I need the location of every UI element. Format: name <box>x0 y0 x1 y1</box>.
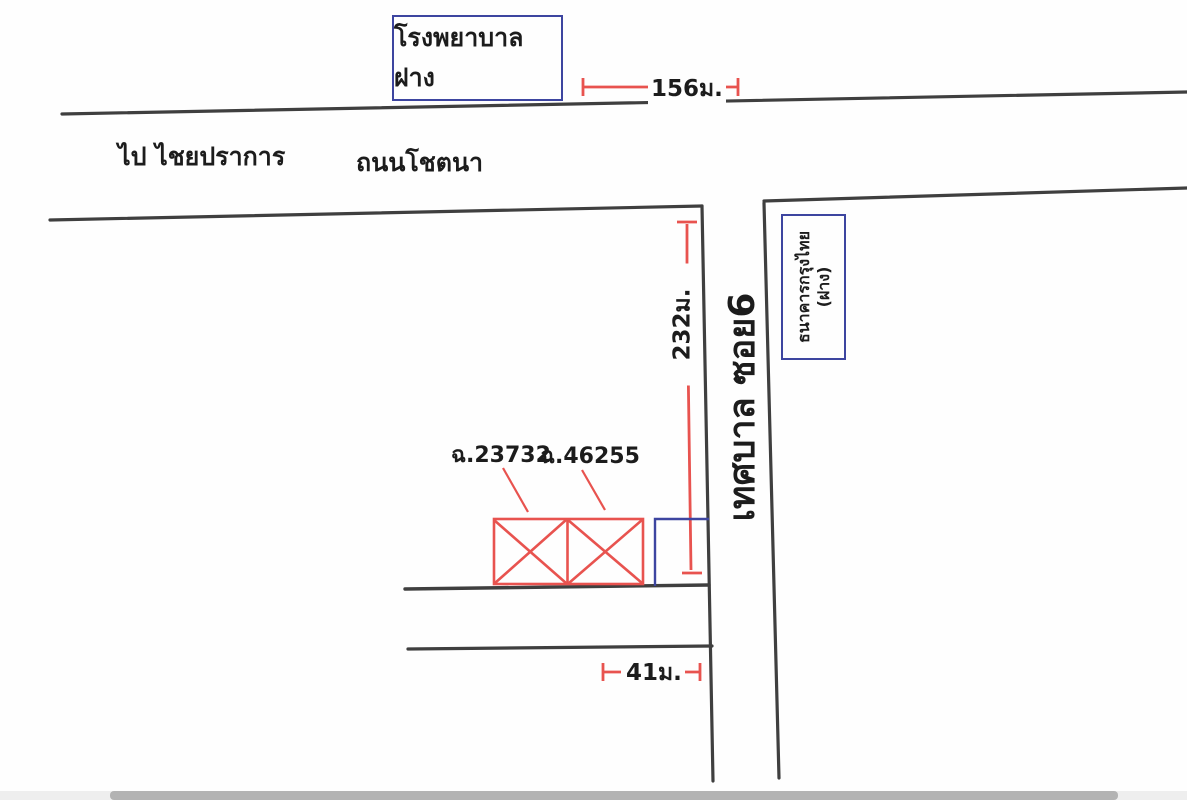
horizontal-scrollbar-thumb[interactable] <box>110 791 1118 800</box>
parcel-1-leader-line <box>503 468 528 512</box>
road-name-label: ถนนโชตนา <box>356 143 483 183</box>
parcel-2-cross <box>568 520 642 583</box>
road-south-edge-left-line <box>50 206 702 220</box>
road-chotana-line <box>62 92 1187 114</box>
bank-label-line1: ธนาคารกรุงไทย <box>794 212 814 362</box>
bank-box: ธนาคารกรุงไทย (ฝาง) <box>781 214 846 360</box>
soi-left-edge-line <box>702 206 713 781</box>
blue-notch-line <box>655 519 709 586</box>
dimension-156-label: 156ม. <box>648 71 726 107</box>
horizontal-scrollbar-track[interactable] <box>0 791 1187 800</box>
sketch-map-canvas: โรงพยาบาลฝาง 156ม. ไป ไชยปราการ ถนนโชตนา… <box>0 0 1187 800</box>
road-south-edge-right-line <box>764 188 1187 201</box>
hospital-label: โรงพยาบาลฝาง <box>394 18 561 98</box>
lower-boundary-line <box>408 646 712 649</box>
soi-name-label: เทศบาล ซอย6 <box>720 254 762 560</box>
bank-label: ธนาคารกรุงไทย (ฝาง) <box>794 212 834 362</box>
parcel-2-label: ฉ.46255 <box>540 438 640 473</box>
bank-label-line2: (ฝาง) <box>814 212 834 362</box>
parcel-1-label: ฉ.23732 <box>451 437 551 472</box>
parcel-base-line <box>405 585 709 589</box>
parcel-2-leader-line <box>582 470 605 510</box>
parcel-1-cross <box>494 520 566 583</box>
dimension-232-label: 232ม. <box>669 264 696 386</box>
parcel-boxes <box>494 519 643 584</box>
direction-label: ไป ไชยปราการ <box>118 137 285 177</box>
dimension-41-label: 41ม. <box>623 655 685 691</box>
hospital-box: โรงพยาบาลฝาง <box>392 15 563 101</box>
map-drawing <box>0 0 1187 800</box>
